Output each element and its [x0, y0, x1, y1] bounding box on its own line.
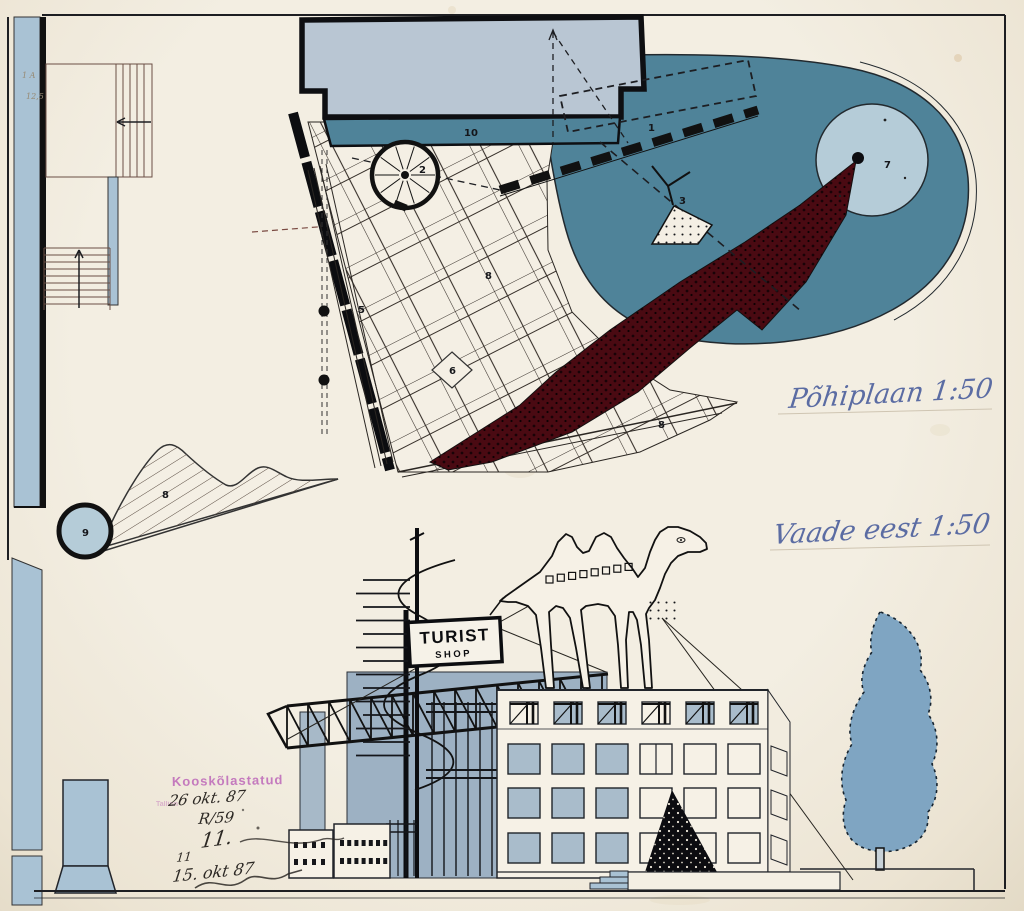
- window: [728, 788, 760, 818]
- plinth: [628, 872, 840, 890]
- label-hill: 8: [162, 490, 169, 501]
- pencil-note-2: 12,5: [26, 92, 44, 101]
- building-footprint: [302, 17, 644, 117]
- tiny-window: [354, 858, 358, 864]
- window: [552, 833, 584, 863]
- stair-detail-lower: [44, 248, 110, 310]
- tiny-window: [383, 840, 387, 846]
- turist-sign: TURIST SHOP: [408, 618, 502, 667]
- tiny-window: [362, 840, 366, 846]
- sign-line1: TURIST: [419, 625, 490, 648]
- stamp-text: Kooskõlastatud: [172, 772, 284, 789]
- architectural-drawing: 1 A 12,5 9 8 7 10: [0, 0, 1024, 911]
- window: [728, 833, 760, 863]
- tree-trunk: [876, 848, 884, 870]
- elevation-title-annotation: Vaade eest 1:50: [771, 509, 992, 551]
- label-spiral-stair: 2: [419, 165, 426, 176]
- window: [684, 744, 716, 774]
- label-paving-b: 8: [658, 420, 665, 431]
- right-building: [497, 690, 790, 878]
- label-pond-circle: 7: [884, 160, 891, 171]
- camel-dot-patch: [646, 596, 676, 623]
- tiny-window: [369, 858, 373, 864]
- tiny-window: [312, 842, 316, 848]
- spiral-stair-plan: 2: [372, 142, 438, 211]
- tiny-window: [362, 858, 366, 864]
- bollard: [55, 780, 116, 893]
- label-paving-a: 8: [485, 271, 492, 282]
- tiny-window: [303, 859, 307, 865]
- window: [508, 788, 540, 818]
- window: [684, 788, 716, 818]
- sign-line2: SHOP: [435, 648, 472, 661]
- tiny-window: [321, 859, 325, 865]
- left-wall-strip: [12, 17, 46, 905]
- ink-note-4: 11: [176, 849, 193, 865]
- tiny-window: [294, 859, 298, 865]
- label-canopy: 10: [464, 128, 478, 139]
- window: [552, 788, 584, 818]
- label-flag-wall: 1: [648, 123, 655, 134]
- tiny-window: [376, 840, 380, 846]
- tiny-window: [347, 858, 351, 864]
- window: [508, 744, 540, 774]
- carpet-roll-section: 9 8: [59, 445, 338, 557]
- tiny-window: [347, 840, 351, 846]
- ink-note-3: 11.: [199, 824, 234, 853]
- label-wall-lines: 5: [358, 305, 365, 316]
- stair-treads: [356, 580, 410, 756]
- window: [508, 833, 540, 863]
- stair-arrow-up: [75, 250, 83, 308]
- camel-tail: [490, 598, 503, 615]
- label-diamond: 6: [449, 366, 456, 377]
- tiny-window: [369, 840, 373, 846]
- label-roll: 9: [82, 528, 89, 539]
- plan-title-annotation: Põhiplaan 1:50: [786, 373, 994, 415]
- pencil-note-1: 1 A: [22, 71, 36, 80]
- pond-center-dot: [852, 152, 864, 164]
- window: [596, 833, 628, 863]
- tiny-window: [340, 840, 344, 846]
- tiny-window: [321, 842, 325, 848]
- drawing-svg: 1 A 12,5 9 8 7 10: [0, 0, 1024, 911]
- tiny-window: [340, 858, 344, 864]
- ink-note-1: 26 okt. 87: [166, 787, 247, 810]
- window: [596, 788, 628, 818]
- elevation: TURIST SHOP: [34, 527, 1005, 898]
- tiny-window: [383, 858, 387, 864]
- window: [552, 744, 584, 774]
- stair-detail-upper: [46, 64, 152, 177]
- camel-sculpture: [490, 527, 707, 688]
- tiny-window: [312, 859, 316, 865]
- ground-lines: [34, 891, 1005, 898]
- label-pond-triangle: 3: [679, 196, 686, 207]
- small-buildings: [289, 824, 390, 878]
- window: [596, 744, 628, 774]
- tiny-window: [354, 840, 358, 846]
- stair-arrow-left: [117, 118, 151, 126]
- window: [728, 744, 760, 774]
- tree: [800, 612, 974, 891]
- tiny-window: [376, 858, 380, 864]
